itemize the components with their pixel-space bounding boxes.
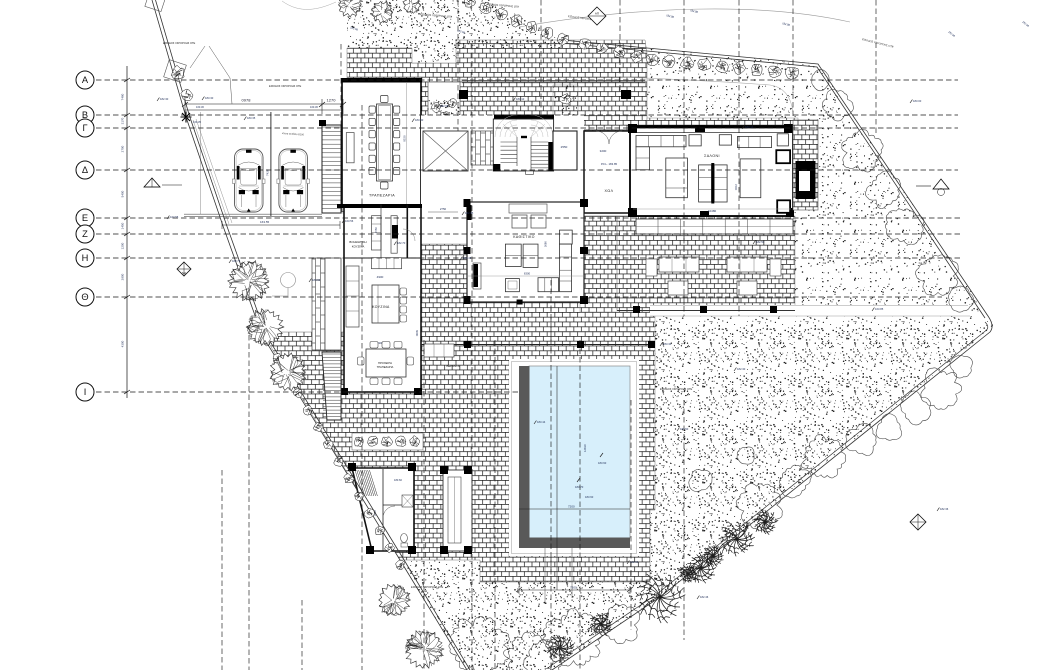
- svg-text:183.75: 183.75: [232, 259, 241, 263]
- svg-text:P.F.L. 183.85: P.F.L. 183.85: [601, 162, 618, 166]
- svg-text:182.60: 182.60: [630, 560, 639, 564]
- svg-text:163.30: 163.30: [196, 105, 204, 109]
- svg-text:ΒΟΗΘΗΤΙΚΗ: ΒΟΗΘΗΤΙΚΗ: [349, 240, 366, 244]
- svg-text:163.55: 163.55: [260, 220, 270, 224]
- svg-text:183.60: 183.60: [394, 478, 402, 482]
- svg-text:182.98: 182.98: [440, 104, 449, 108]
- svg-text:Ε: Ε: [82, 213, 88, 223]
- svg-text:1270: 1270: [327, 98, 337, 103]
- svg-text:4300: 4300: [121, 340, 125, 347]
- svg-text:7200: 7200: [568, 505, 575, 509]
- svg-text:2550: 2550: [561, 145, 568, 149]
- svg-text:ΕΙΣΟΔΟΣ ΥΔΡΟΡΟΗΣ ΟΤΕ: ΕΙΣΟΔΟΣ ΥΔΡΟΡΟΗΣ ΟΤΕ: [660, 387, 693, 391]
- svg-text:5400: 5400: [121, 190, 125, 197]
- svg-text:6300: 6300: [524, 272, 531, 276]
- svg-text:1450: 1450: [121, 222, 125, 229]
- svg-text:182.30: 182.30: [160, 97, 169, 101]
- svg-text:163.56: 163.56: [345, 219, 354, 223]
- svg-text:7300: 7300: [570, 586, 577, 590]
- svg-text:182.46: 182.46: [700, 595, 709, 599]
- svg-text:ΣΑΛΟΝΙ: ΣΑΛΟΝΙ: [704, 154, 720, 158]
- svg-text:ΕΙΣΟΔΟΣ ΥΔΡΟΡΟΗΣ ΟΤΕ: ΕΙΣΟΔΟΣ ΥΔΡΟΡΟΗΣ ΟΤΕ: [163, 41, 196, 45]
- svg-text:ΒΕΡΑΝΤΑ: ΒΕΡΑΝΤΑ: [446, 364, 459, 368]
- svg-text:182.36: 182.36: [940, 507, 949, 511]
- svg-text:Θ: Θ: [81, 292, 88, 302]
- svg-text:Ζ: Ζ: [82, 229, 88, 239]
- svg-text:ΑΠ: ΑΠ: [595, 12, 599, 16]
- svg-text:183.45: 183.45: [463, 256, 472, 260]
- svg-text:183.10: 183.10: [516, 97, 525, 101]
- svg-text:Η: Η: [82, 253, 89, 263]
- svg-text:3750: 3750: [374, 227, 378, 233]
- svg-text:ΕΙΣΟΔΟΣ ΥΔΡΟΡΟΗΣ ΟΤΕ: ΕΙΣΟΔΟΣ ΥΔΡΟΡΟΗΣ ΟΤΕ: [411, 585, 444, 589]
- svg-text:163.30: 163.30: [310, 105, 318, 109]
- svg-text:Ι: Ι: [84, 387, 87, 397]
- svg-text:Δ: Δ: [82, 165, 88, 175]
- svg-text:183.00: 183.00: [913, 99, 922, 103]
- svg-text:183.60: 183.60: [585, 495, 594, 499]
- svg-text:Γ: Γ: [82, 123, 87, 133]
- svg-text:2900: 2900: [121, 273, 125, 280]
- svg-text:183.30: 183.30: [205, 96, 214, 100]
- svg-text:182.85: 182.85: [465, 211, 474, 215]
- svg-text:182.50: 182.50: [756, 240, 765, 244]
- svg-text:1200: 1200: [121, 242, 125, 249]
- svg-text:183.70: 183.70: [575, 485, 584, 489]
- svg-text:4900: 4900: [377, 275, 384, 279]
- svg-text:ΠΡΟΧΕΙΡΗ: ΠΡΟΧΕΙΡΗ: [378, 361, 392, 365]
- svg-text:183.30: 183.30: [415, 118, 424, 122]
- svg-text:183.30: 183.30: [663, 342, 672, 346]
- svg-text:12810: 12810: [583, 444, 587, 452]
- svg-text:183.10: 183.10: [745, 125, 754, 129]
- svg-text:183.60: 183.60: [598, 461, 607, 465]
- svg-text:ΚΟΥΖΙΝΑ: ΚΟΥΖΙΝΑ: [352, 245, 365, 249]
- svg-text:163.55: 163.55: [170, 215, 179, 219]
- svg-text:163.35: 163.35: [193, 120, 201, 124]
- svg-text:3200: 3200: [600, 149, 607, 153]
- svg-text:3170: 3170: [121, 117, 125, 124]
- svg-text:ΧΩΛ: ΧΩΛ: [605, 189, 614, 193]
- svg-text:ΤΡΑΠΕΖΑΡΙΑ: ΤΡΑΠΕΖΑΡΙΑ: [369, 194, 395, 198]
- svg-text:ΝΔ: ΝΔ: [182, 271, 186, 275]
- svg-text:163.85: 163.85: [875, 307, 884, 311]
- svg-text:9150: 9150: [403, 135, 407, 142]
- svg-text:183.44: 183.44: [537, 420, 546, 424]
- svg-text:10480: 10480: [708, 209, 717, 213]
- svg-text:7480: 7480: [121, 93, 125, 100]
- svg-text:183.35: 183.35: [247, 116, 256, 120]
- svg-text:0978: 0978: [242, 98, 252, 103]
- svg-text:Α: Α: [82, 75, 89, 85]
- svg-text:182.70: 182.70: [397, 241, 406, 245]
- svg-text:ΚΟΥΖΙΝΑ: ΚΟΥΖΙΝΑ: [372, 305, 390, 309]
- svg-text:ΕΙΣΟΔΟΣ ΥΔΡΟΡΟΗΣ ΟΤΕ: ΕΙΣΟΔΟΣ ΥΔΡΟΡΟΗΣ ΟΤΕ: [269, 84, 302, 88]
- svg-text:2700: 2700: [121, 145, 125, 152]
- svg-text:183.50: 183.50: [680, 427, 689, 431]
- svg-text:ΚΑΘΙΣΤΙΚΟ: ΚΑΘΙΣΤΙΚΟ: [513, 235, 535, 239]
- svg-text:ΤΡΑΠΕΖΑΡΙΑ: ΤΡΑΠΕΖΑΡΙΑ: [377, 365, 394, 369]
- svg-text:5060: 5060: [544, 241, 548, 247]
- svg-text:183.60: 183.60: [312, 278, 321, 282]
- svg-text:182.30: 182.30: [737, 367, 746, 371]
- svg-text:2750: 2750: [440, 207, 447, 211]
- svg-text:7200: 7200: [734, 184, 738, 191]
- svg-text:6080: 6080: [415, 330, 419, 337]
